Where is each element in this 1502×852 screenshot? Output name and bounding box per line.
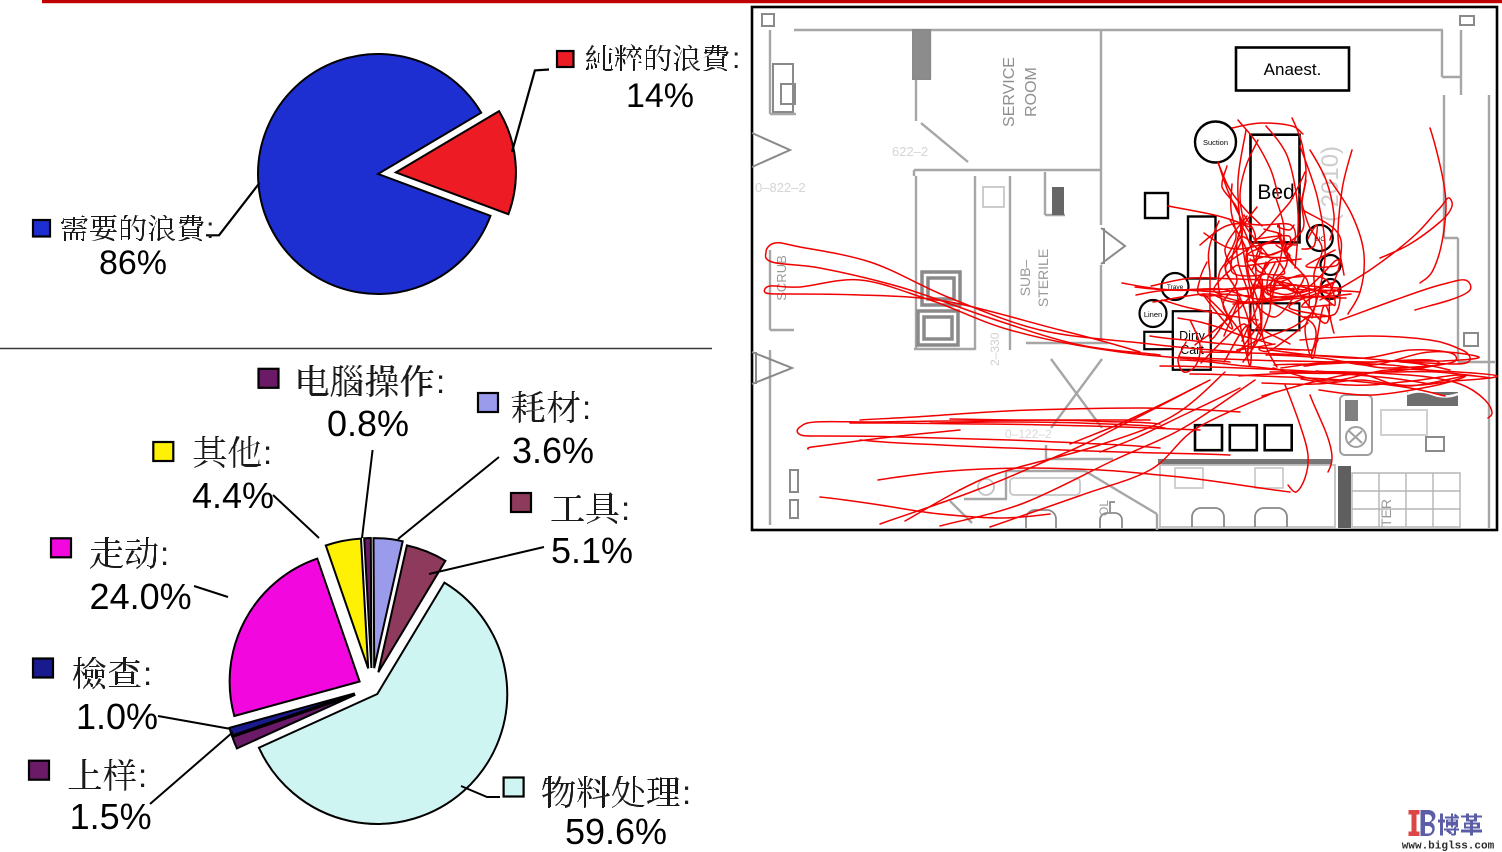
svg-text:1.0%: 1.0% bbox=[76, 696, 158, 737]
svg-text:Anaest.: Anaest. bbox=[1264, 60, 1322, 79]
svg-text::: : bbox=[206, 212, 214, 245]
svg-text:24.0%: 24.0% bbox=[90, 576, 192, 617]
svg-text:SUB–: SUB– bbox=[1017, 260, 1033, 297]
svg-text:ROOM: ROOM bbox=[1023, 67, 1040, 117]
svg-text::: : bbox=[436, 363, 445, 400]
svg-text:2–330: 2–330 bbox=[988, 332, 1002, 366]
svg-text:TER: TER bbox=[1378, 499, 1394, 527]
svg-text:OL: OL bbox=[1097, 500, 1111, 516]
svg-text::: : bbox=[582, 389, 591, 426]
svg-text:14%: 14% bbox=[626, 77, 694, 115]
svg-text::: : bbox=[682, 774, 691, 811]
svg-text:Linen: Linen bbox=[1144, 310, 1162, 319]
svg-text:SERVICE: SERVICE bbox=[1001, 57, 1018, 127]
svg-text:3.6%: 3.6% bbox=[512, 430, 594, 471]
svg-text:4.4%: 4.4% bbox=[192, 475, 274, 516]
svg-text:59.6%: 59.6% bbox=[565, 811, 667, 852]
svg-text:0–822–2: 0–822–2 bbox=[755, 180, 806, 195]
svg-text:www.biglss.com: www.biglss.com bbox=[1402, 841, 1495, 852]
svg-text::: : bbox=[732, 42, 740, 75]
svg-text:86%: 86% bbox=[99, 244, 167, 282]
svg-text:1.5%: 1.5% bbox=[70, 796, 152, 837]
svg-text::: : bbox=[143, 655, 152, 692]
svg-text::: : bbox=[160, 535, 169, 572]
svg-text:5.1%: 5.1% bbox=[551, 530, 633, 571]
svg-text:0–122–2: 0–122–2 bbox=[1005, 427, 1052, 441]
svg-text::: : bbox=[138, 757, 147, 794]
svg-text:0.8%: 0.8% bbox=[327, 403, 409, 444]
svg-text::: : bbox=[263, 434, 272, 471]
svg-text:STERILE: STERILE bbox=[1035, 249, 1051, 307]
svg-text:622–2: 622–2 bbox=[892, 144, 928, 159]
svg-text:Suction: Suction bbox=[1203, 138, 1228, 147]
svg-text::: : bbox=[621, 490, 630, 527]
